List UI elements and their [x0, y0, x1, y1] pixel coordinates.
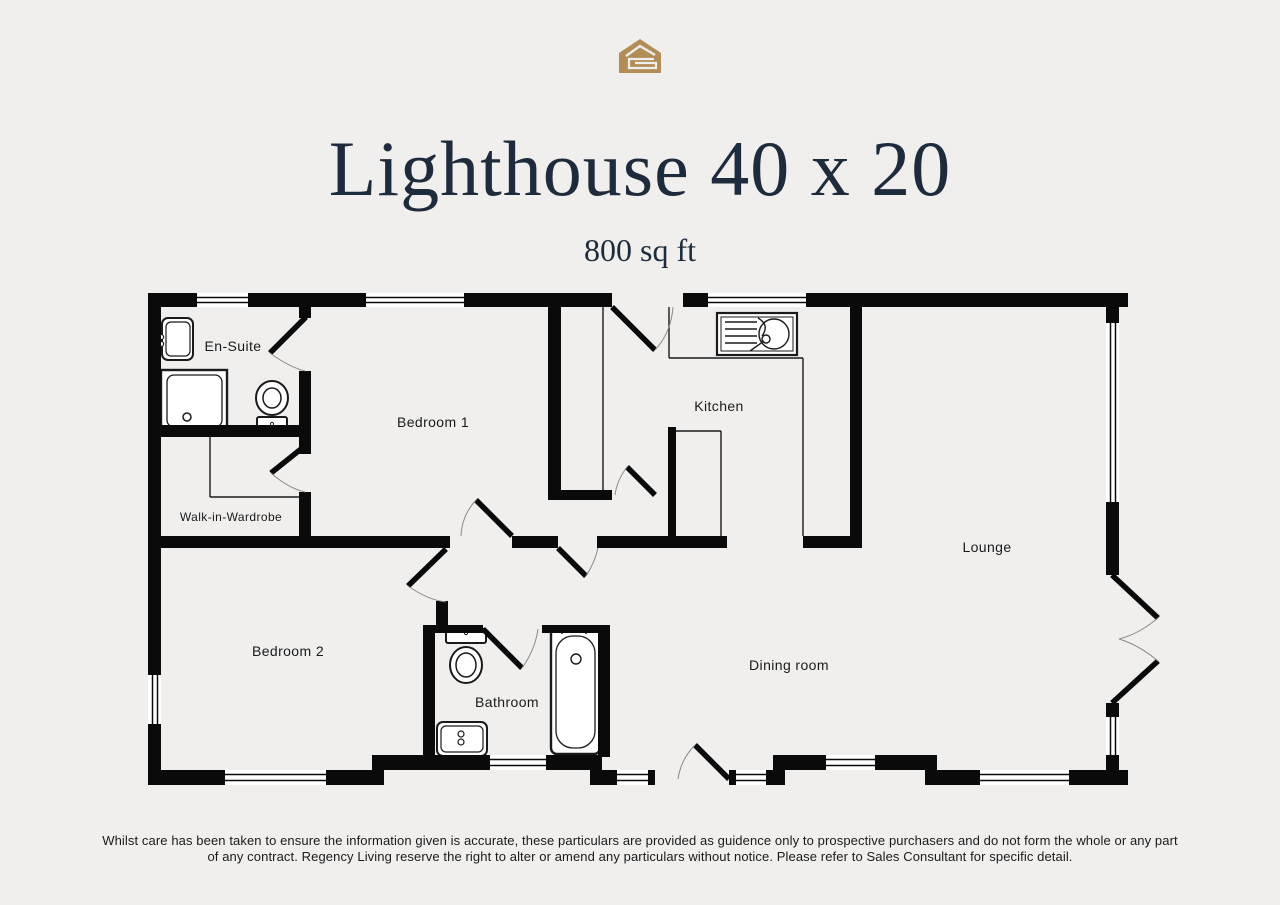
central-wall	[512, 536, 558, 548]
hall-wall	[548, 490, 612, 500]
bedroom1-door	[461, 500, 512, 536]
wardrobe-shelf-line	[210, 437, 299, 497]
wall-right	[1106, 502, 1119, 575]
ensuite-bottom-wall	[148, 425, 311, 437]
room-label-bathroom: Bathroom	[475, 694, 539, 710]
floorplan-drawing: En-Suite Bedroom 1 Kitchen Walk-in-Wardr…	[0, 0, 1280, 905]
bedroom2-door-jamb	[436, 601, 448, 625]
bathroom-right-wall	[598, 625, 610, 757]
kitchen-lounge-wall	[850, 307, 862, 548]
ensuite-toilet	[256, 381, 288, 431]
room-label-walk-in-wardrobe: Walk-in-Wardrobe	[180, 510, 282, 524]
kitchen-sink	[717, 313, 797, 355]
bathtub	[551, 626, 600, 754]
disclaimer-line-1: Whilst care has been taken to ensure the…	[0, 833, 1280, 849]
room-label-en-suite: En-Suite	[205, 338, 262, 354]
kitchen-bottom-wall	[597, 536, 727, 548]
room-label-kitchen: Kitchen	[694, 398, 744, 414]
wardrobe-right-wall	[299, 492, 311, 536]
bedroom2-door	[408, 549, 446, 602]
wall-right	[1106, 293, 1119, 323]
bathroom-toilet	[446, 629, 486, 683]
disclaimer: Whilst care has been taken to ensure the…	[0, 833, 1280, 865]
ensuite-sink	[158, 318, 193, 360]
kitchen-door	[615, 467, 655, 495]
brochure-page: Lighthouse 40 x 20 800 sq ft	[0, 0, 1280, 905]
room-label-bedroom-2: Bedroom 2	[252, 643, 324, 659]
room-label-dining-room: Dining room	[749, 657, 829, 673]
ensuite-door	[270, 317, 306, 371]
disclaimer-line-2: of any contract. Regency Living reserve …	[0, 849, 1280, 865]
shower-tray	[161, 370, 227, 432]
bathroom-door	[483, 629, 538, 668]
bathroom-left-wall	[423, 625, 435, 757]
window	[148, 675, 161, 724]
bathroom-basin	[437, 722, 487, 756]
bathroom-top-wall	[423, 625, 483, 633]
hall-door	[558, 548, 598, 576]
room-label-bedroom-1: Bedroom 1	[397, 414, 469, 430]
bedroom1-right-wall	[548, 307, 561, 490]
ensuite-right-wall	[299, 371, 311, 425]
kitchen-cupboard-wall	[668, 427, 676, 536]
lounge-french-doors	[1112, 575, 1158, 703]
front-entrance-door	[612, 307, 673, 350]
kitchen-cupboard-line	[676, 431, 721, 536]
central-wall	[148, 536, 450, 548]
room-label-lounge: Lounge	[962, 539, 1011, 555]
wall-right	[1106, 703, 1119, 717]
wardrobe-door	[271, 445, 306, 492]
dining-rear-door	[678, 745, 729, 779]
